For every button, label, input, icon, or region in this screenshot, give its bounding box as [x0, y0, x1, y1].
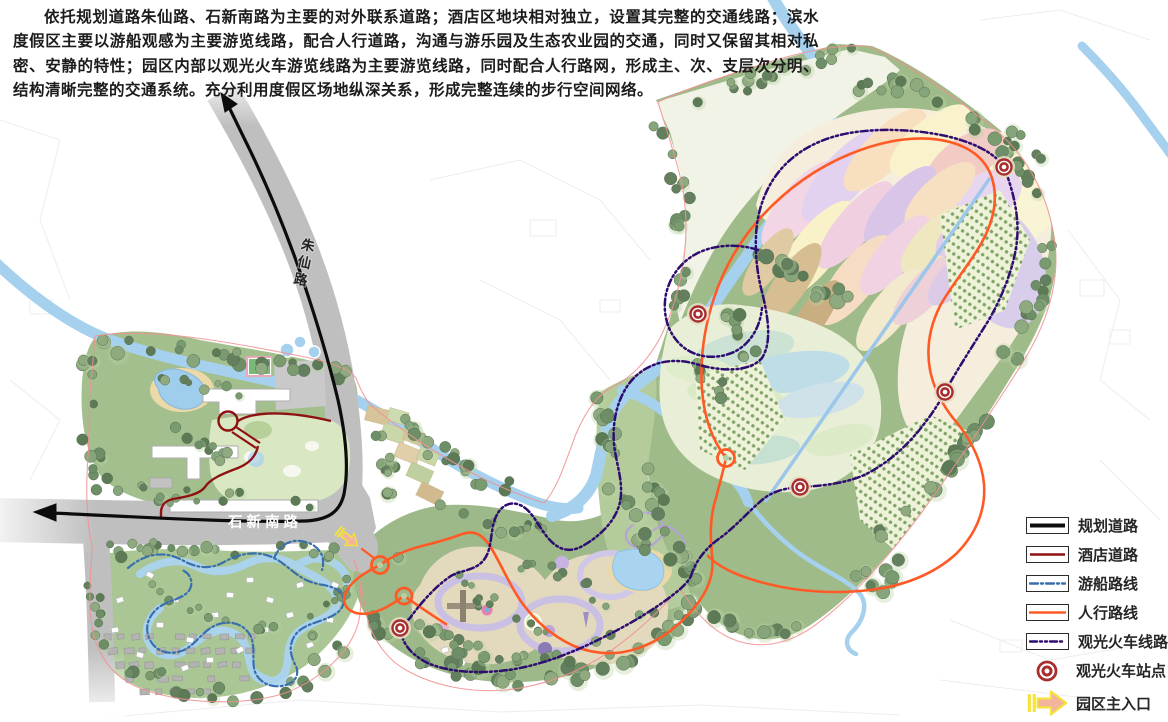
legend: 规划道路 酒店道路 游船路线 人行路线 观光火车线路 观光火车站点 园区主入口 — [1026, 511, 1168, 721]
planning-road-swatch-icon — [1026, 517, 1069, 534]
train-station-marker — [938, 385, 953, 400]
site-map: 朱仙路 石新南路 — [0, 0, 1168, 722]
legend-item-hotel-road: 酒店道路 — [1026, 540, 1168, 569]
pedestrian-route-swatch-icon — [1026, 604, 1069, 621]
legend-item-train-station: 观光火车站点 — [1026, 656, 1168, 685]
boat-route-swatch-icon — [1026, 575, 1069, 592]
train-route-swatch-icon — [1026, 633, 1069, 650]
legend-item-planning-road: 规划道路 — [1026, 511, 1168, 540]
description-paragraph: 依托规划道路朱仙路、石新南路为主要的对外联系道路；酒店区地块相对独立，设置其完整… — [13, 6, 819, 104]
plan-page: 朱仙路 石新南路 依托规划道路朱仙路、石新南路为主要的对外联系道路；酒店区地块相… — [0, 0, 1168, 722]
legend-item-boat-route: 游船路线 — [1026, 569, 1168, 598]
road-fade — [80, 648, 124, 722]
train-station-marker — [997, 160, 1012, 175]
legend-item-pedestrian-route: 人行路线 — [1026, 598, 1168, 627]
train-station-marker — [691, 307, 706, 322]
shixin-road-label: 石新南路 — [227, 513, 302, 531]
legend-item-train-route: 观光火车线路 — [1026, 627, 1168, 656]
train-station-marker — [393, 621, 408, 636]
train-station-marker — [793, 480, 808, 495]
train-station-icon — [1026, 659, 1067, 683]
entrance-arrow-icon — [1026, 686, 1067, 720]
hotel-road-swatch-icon — [1026, 546, 1069, 563]
road-fade — [0, 490, 95, 552]
legend-item-main-entrance: 园区主入口 — [1026, 685, 1168, 721]
